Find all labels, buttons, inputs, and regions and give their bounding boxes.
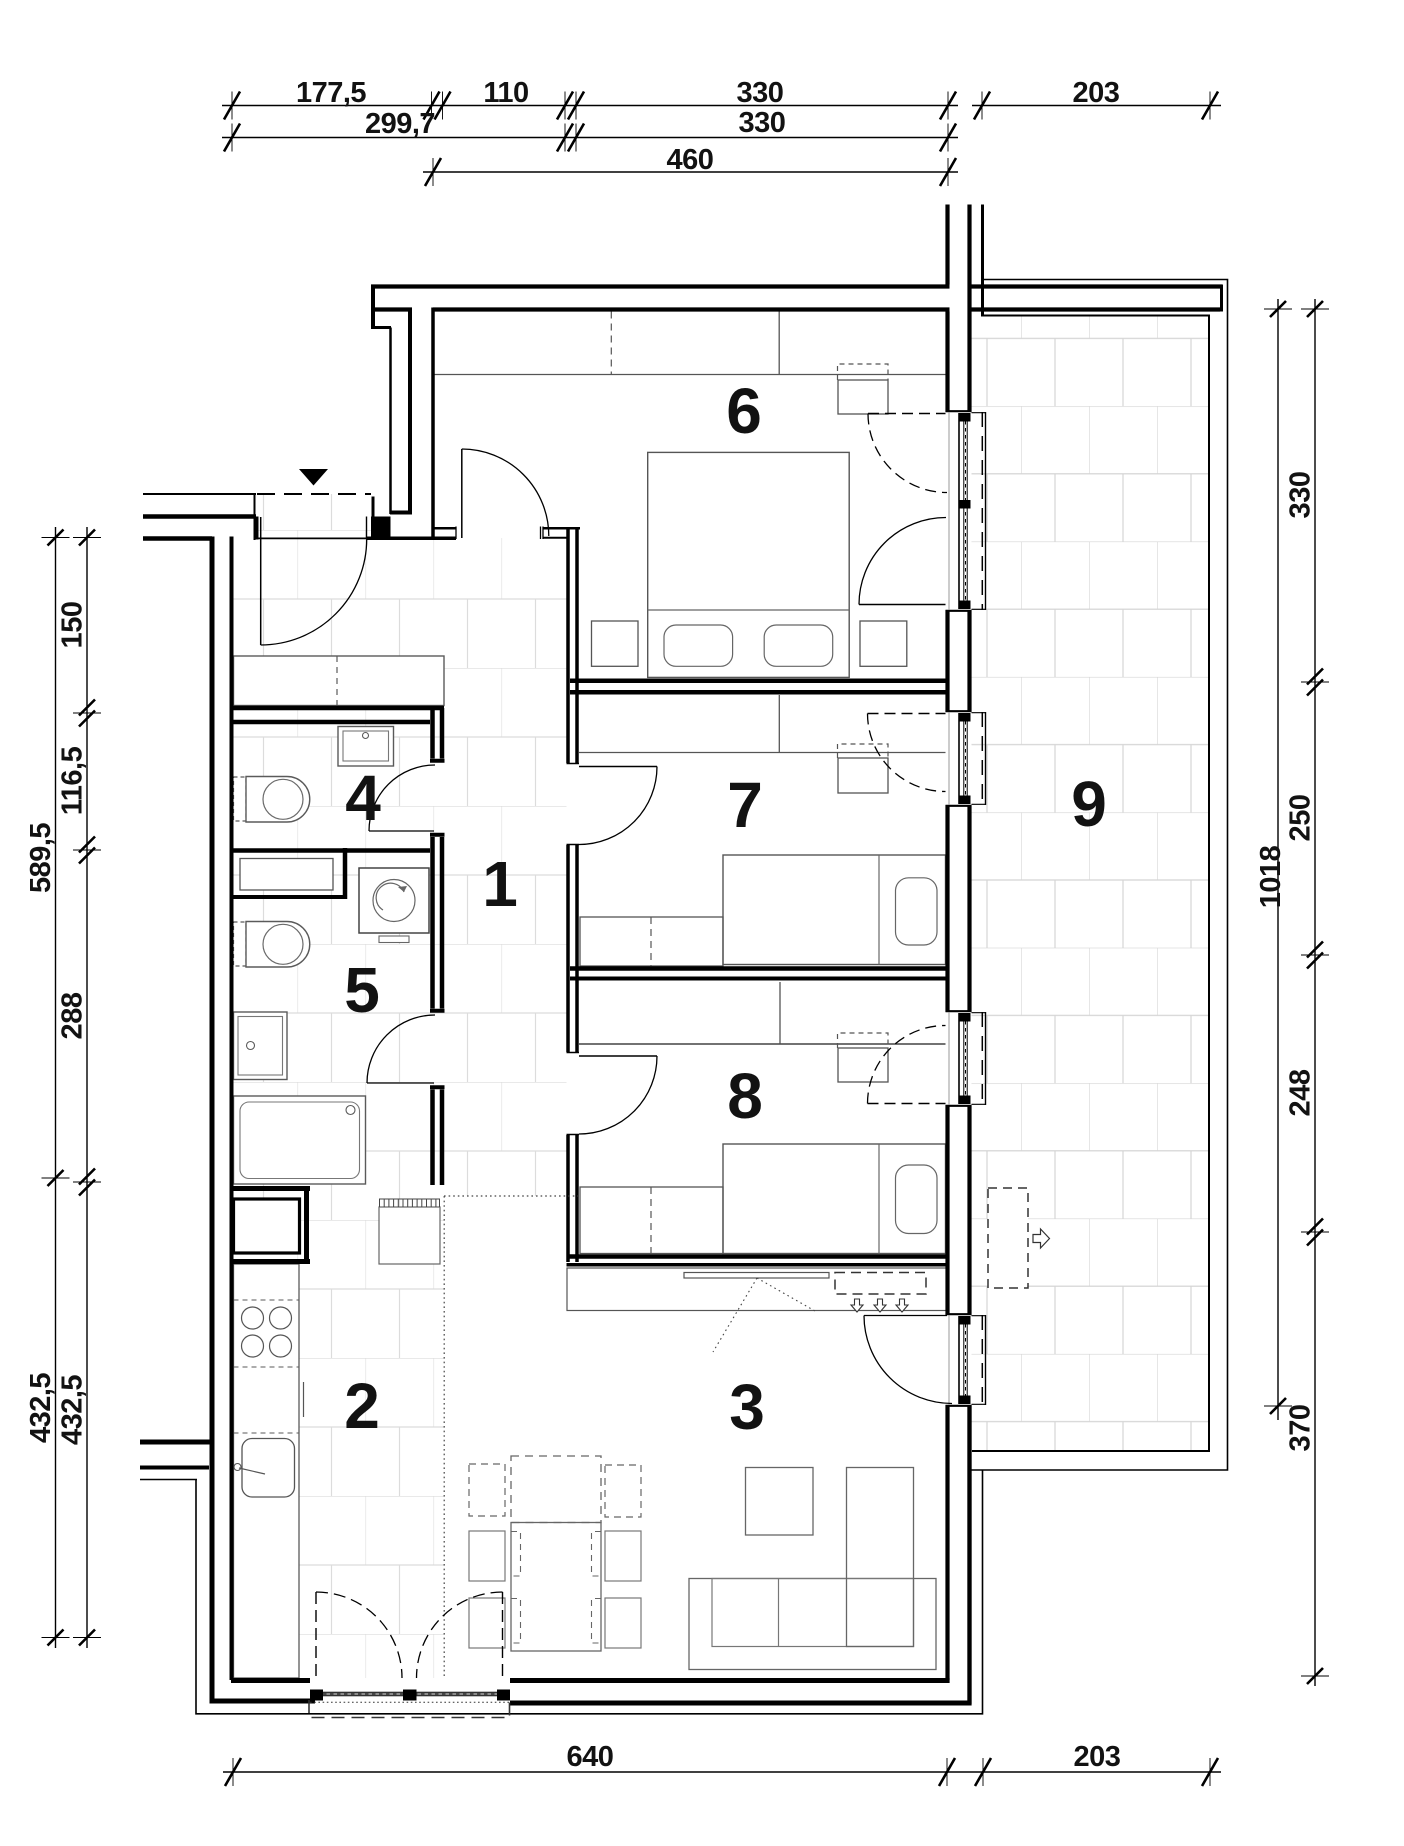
svg-text:330: 330 <box>739 107 786 139</box>
svg-text:248: 248 <box>1285 1069 1317 1116</box>
svg-text:9: 9 <box>1071 768 1107 840</box>
svg-text:432,5: 432,5 <box>57 1375 89 1445</box>
svg-text:177,5: 177,5 <box>296 77 366 109</box>
svg-text:203: 203 <box>1074 1741 1121 1773</box>
svg-text:110: 110 <box>483 77 528 109</box>
svg-text:460: 460 <box>667 144 714 176</box>
svg-text:299,7: 299,7 <box>365 108 435 140</box>
svg-text:6: 6 <box>726 375 762 447</box>
svg-text:370: 370 <box>1285 1405 1317 1452</box>
svg-text:330: 330 <box>1285 472 1317 519</box>
svg-text:5: 5 <box>344 954 380 1026</box>
svg-text:1: 1 <box>482 848 518 920</box>
svg-text:432,5: 432,5 <box>25 1373 57 1443</box>
svg-text:589,5: 589,5 <box>25 823 57 893</box>
svg-text:4: 4 <box>345 762 381 834</box>
svg-text:203: 203 <box>1073 77 1120 109</box>
svg-text:116,5: 116,5 <box>57 746 89 815</box>
svg-text:330: 330 <box>737 77 784 109</box>
svg-text:288: 288 <box>57 992 89 1039</box>
svg-text:150: 150 <box>57 602 89 649</box>
svg-text:2: 2 <box>344 1370 380 1442</box>
svg-text:7: 7 <box>727 769 763 841</box>
svg-text:640: 640 <box>567 1741 614 1773</box>
svg-text:8: 8 <box>727 1060 763 1132</box>
svg-text:1018: 1018 <box>1255 845 1287 908</box>
svg-text:3: 3 <box>729 1371 765 1443</box>
svg-text:250: 250 <box>1285 795 1317 842</box>
